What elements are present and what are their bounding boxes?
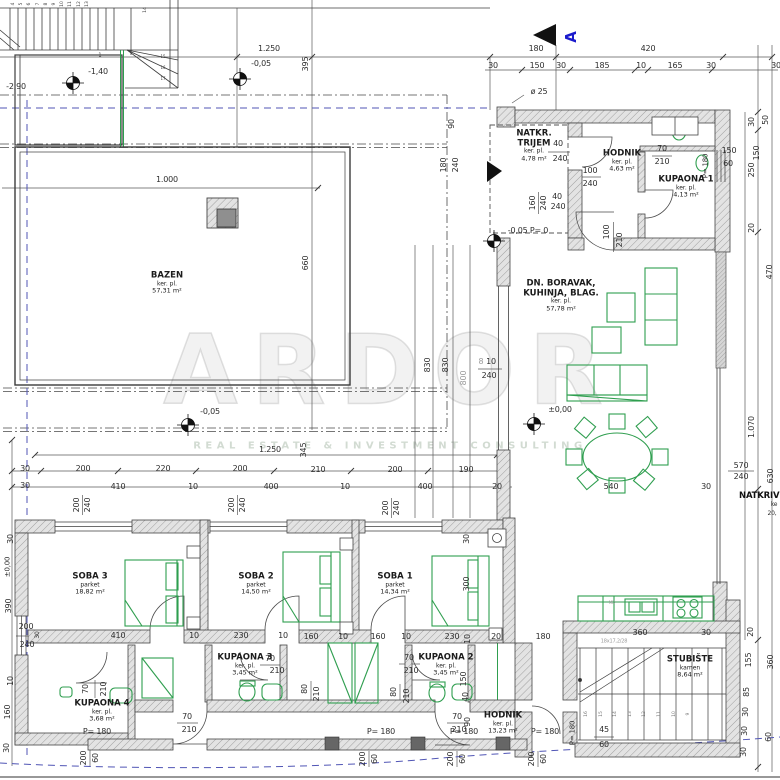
windows [17, 150, 725, 655]
pool-column-detail [207, 198, 238, 228]
bathroom-fixtures [60, 119, 708, 703]
cabinet-boxes [187, 117, 698, 640]
section-marker-arrows [487, 24, 556, 182]
plan-geometry [0, 0, 780, 780]
porch-outline [490, 125, 568, 233]
pool [15, 147, 350, 385]
property-line-blue [0, 100, 780, 768]
floor-plan-canvas: ARDOR REAL ESTATE & INVESTMENT CONSULTIN… [0, 0, 780, 780]
staircase-top [0, 0, 490, 145]
door-arcs [76, 137, 673, 745]
staircase-bottom [578, 648, 726, 740]
section-label-a: A [562, 31, 580, 43]
elevation-markers [62, 68, 545, 436]
